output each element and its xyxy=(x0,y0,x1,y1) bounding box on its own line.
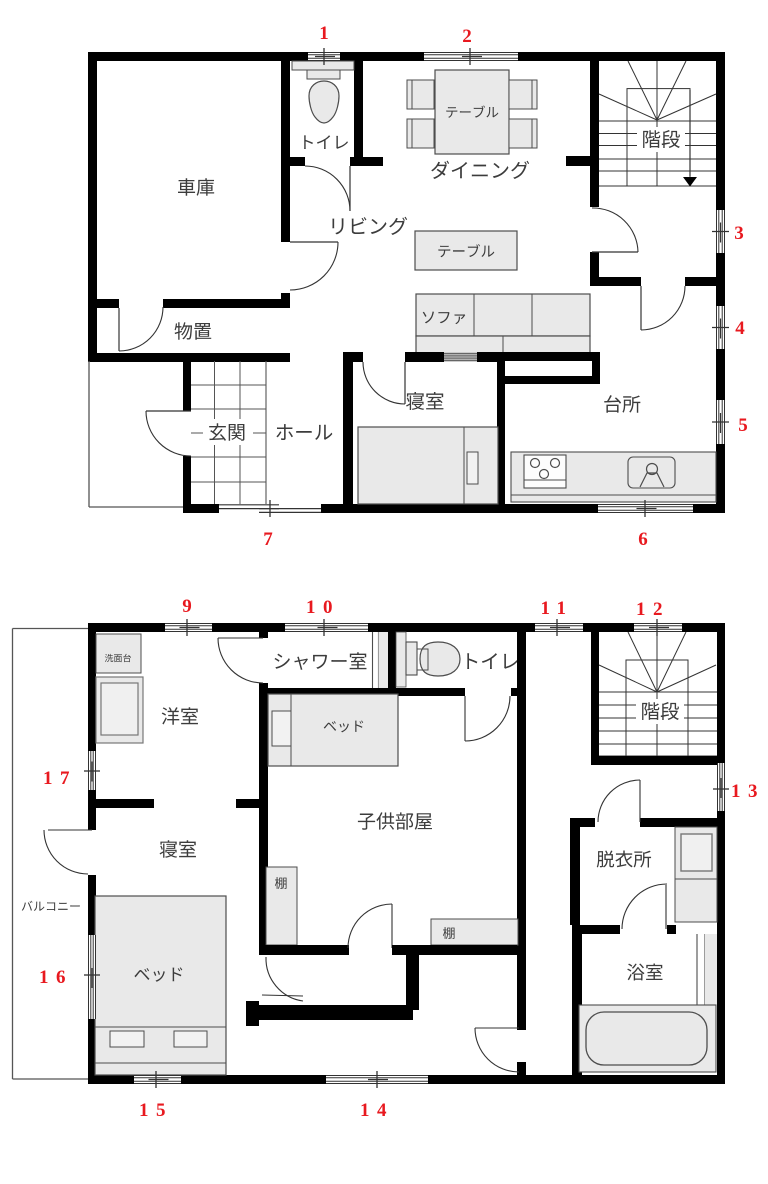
svg-text:6: 6 xyxy=(638,529,648,550)
svg-text:11: 11 xyxy=(541,598,574,619)
svg-text:9: 9 xyxy=(182,596,192,617)
svg-text:10: 10 xyxy=(306,597,340,618)
svg-text:2: 2 xyxy=(462,26,472,47)
svg-text:1: 1 xyxy=(319,23,329,44)
svg-text:14: 14 xyxy=(360,1100,394,1121)
svg-text:15: 15 xyxy=(139,1100,173,1121)
svg-text:13: 13 xyxy=(731,781,765,802)
svg-text:12: 12 xyxy=(636,599,670,620)
svg-text:3: 3 xyxy=(734,223,744,244)
svg-text:5: 5 xyxy=(738,415,748,436)
svg-text:16: 16 xyxy=(39,967,73,988)
svg-text:4: 4 xyxy=(735,318,745,339)
svg-text:7: 7 xyxy=(263,529,273,550)
svg-text:17: 17 xyxy=(43,768,77,789)
